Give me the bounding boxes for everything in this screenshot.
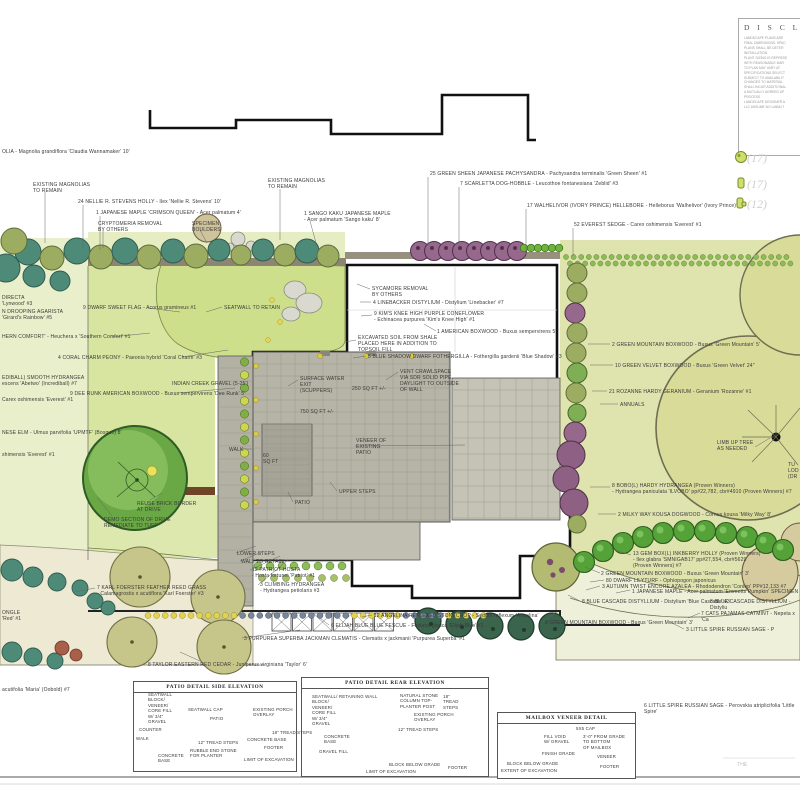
legend-row-1: (17) — [733, 149, 767, 167]
plan-label: LIMIT OF EXCAVATION — [366, 769, 416, 774]
plan-label: 9 DEE RUNK AMERICAN BOXWOOD - Buxus semp… — [70, 391, 245, 397]
plan-label: NATURAL STONE COLUMN TOP- PLANTER POST — [400, 693, 438, 709]
plan-label: LIMB UP TREE AS NEEDED — [717, 440, 753, 452]
plan-label: 9 DWARF SWEET FLAG - Acorus gramineus #1 — [83, 305, 196, 311]
plan-label: N DROOPING AGARISTA 'Girard's Rainbow' #… — [2, 309, 63, 321]
plan-label: EXISTING PORCH OVERLAY — [414, 712, 454, 723]
plan-label: FOOTER — [448, 765, 467, 770]
legend-count: (17) — [747, 151, 767, 166]
patio-rear-elevation-title: PATIO DETAIL REAR ELEVATION — [302, 678, 488, 689]
plan-label: 8 BLUE CASCADE DISTYLLIUM - Distyliu — [710, 599, 800, 611]
plan-label: 5 BLUE SHADOW DWARF FOTHERGILLA - Fother… — [368, 354, 562, 360]
plan-label: 8 BLUE CASCADE DISTYLLIUM - Distylium 'B… — [582, 599, 730, 605]
plan-label: TU LOD (DR — [788, 462, 799, 480]
plan-label: DIRECTA 'Lynwood' #3 — [2, 295, 33, 307]
plan-label: EDIBALL) SMOOTH HYDRANGEA escens 'Abetwo… — [2, 375, 84, 387]
plan-label: EXISTING MAGNOLIAS TO REMAIN — [33, 182, 90, 194]
plan-label: 1 AMERICAN BOXWOOD - Buxus sempervirens … — [437, 329, 557, 335]
plan-label: FOOTER — [600, 764, 619, 769]
plan-label: 1 JAPANESE MAPLE 'CRIMSON QUEEN' - Acer … — [96, 210, 241, 216]
plan-label: LOWER STEPS — [237, 551, 275, 557]
plan-label: 52 EVEREST SEDGE - Carex oshimensis 'Eve… — [574, 222, 702, 228]
plan-label: NESE ELM - Ulmus parvifolia 'UPMTF' (Bos… — [2, 430, 122, 436]
plan-label: 12" TREAD STEPS — [398, 727, 438, 732]
plan-label: SEATWALL BLOCK/ VENEER/ CORE FILL W/ 3/4… — [148, 692, 172, 724]
property-boundary — [150, 95, 536, 140]
plan-label: 17 WALHELIVOR (IVORY PRINCE) HELLEBORE -… — [527, 203, 737, 209]
plan-label: PATIO — [210, 716, 223, 721]
plan-label: CONCRETE BASE — [324, 734, 350, 745]
plan-label: WALL TO RETAIN — [241, 559, 284, 565]
plan-label: THE — [737, 762, 747, 768]
plan-label: 6 LITTLE SPIRE RUSSIAN SAGE - Perovskia … — [644, 703, 800, 715]
plan-label: COUNTER — [139, 727, 162, 732]
plan-label: 5X5 CAP — [576, 726, 595, 731]
plan-label: 2 GREEN MOUNTAIN BOXWOOD - Buxus 'Green … — [612, 342, 760, 348]
plan-label: 1 JAPANESE MAPLE - Acer palmatum 'Emmett… — [632, 589, 798, 595]
plan-label: 3'-0" FROM GRADE TO BOTTOM OF MAILBOX — [583, 734, 625, 750]
plan-label: DEMO SECTION OF DRIVE REMEDIATE TO TURF — [104, 517, 171, 529]
chinese-elm-tree — [83, 426, 187, 530]
plan-label: 6 ELIJAH BLUE BLUE FESCUE - Festuca glau… — [331, 623, 484, 629]
shrub-round-icon — [733, 149, 749, 165]
plan-label: EXISTING MAGNOLIAS TO REMAIN — [268, 178, 325, 190]
plan-label: SEATWALL/ RETAINING WALL BLOCK/ VENEER/ … — [312, 694, 378, 726]
plan-label: HERN COMFORT' - Heuchera x 'Southern Com… — [2, 334, 131, 340]
plan-label: VENT CRAWLSPACE VIA SDR SOLID PIPE DAYLI… — [400, 369, 459, 393]
plan-label: WALK — [136, 736, 149, 741]
plan-label: BLOCK BELOW GRADE — [389, 762, 440, 767]
landscape-plan-sheet: D I S C L A I M E R LANDSCAPE PLANS AREF… — [0, 0, 800, 800]
plan-label: 250 SQ FT +/- — [352, 386, 386, 392]
plan-label: EXCAVATED SOIL FROM SHALE PLACED HERE IN… — [358, 335, 437, 353]
plan-label: LIMIT OF EXCAVATION — [244, 757, 294, 762]
plan-label: CONCRETE BASE — [247, 737, 287, 742]
plan-label: 3 LITTLE SPIRE RUSSIAN SAGE - P — [686, 627, 774, 633]
plan-label: 7 CATS PAJAMAS CATMINT - Nepeta x 'Ca — [701, 611, 800, 623]
plan-label: 60 SQ FT — [263, 453, 278, 465]
plan-label: REUSE BRICK BORDER AT DRIVE — [137, 501, 196, 513]
plan-label: acutifolia 'Maria' (Oobold) #7 — [2, 687, 70, 693]
plan-label: VENEER — [597, 754, 616, 759]
plan-label: 12" TREAD STEPS — [198, 740, 238, 745]
plan-label: 12 PATRIOT HOSTA - Hosta fortunei 'Patri… — [252, 567, 315, 579]
plan-label: 24 NELLIE R. STEVENS HOLLY - Ilex 'Nelli… — [78, 199, 221, 205]
plan-label: OLIA - Magnolia grandiflora 'Claudia Wan… — [2, 149, 130, 155]
mailbox-veneer-detail-title: MAILBOX VENEER DETAIL — [498, 713, 635, 724]
plan-label: 8 TAYLOR EASTERN RED CEDAR - Juniperus v… — [148, 662, 307, 668]
plan-label: 8 BOBO(L) HARDY HYDRANGEA (Proven Winner… — [612, 483, 792, 495]
plan-label: SYCAMORE REMOVAL BY OTHERS — [372, 286, 428, 298]
plan-label: 21 ROZANNE HARDY GERANIUM - Geranium 'Ro… — [609, 389, 752, 395]
plan-label: shimensis 'Everest' #1 — [2, 452, 55, 458]
plan-label: EXTENT OF EXCAVATION — [501, 768, 557, 773]
plan-label: SURFACE WATER EXIT (SCUPPERS) — [300, 376, 344, 394]
plan-label: PATIO — [295, 500, 310, 506]
plan-label: 1 SANGO KAKU JAPANESE MAPLE - Acer palma… — [304, 211, 391, 223]
plan-label: 9 KIM'S KNEE HIGH PURPLE CONEFLOWER - Ec… — [374, 311, 484, 323]
plan-label: ONGLE 'Red' #1 — [2, 610, 21, 622]
plan-label: 3 CLIMBING HYDRANGEA - Hydrangea petiola… — [260, 582, 324, 594]
plan-label: UPPER STEPS — [339, 489, 376, 495]
legend-count: (12) — [747, 197, 767, 212]
disclaimer-line: LLC ASSUME NO LIABILIT — [744, 105, 800, 110]
plan-label: FINISH GRADE — [542, 751, 575, 756]
plan-label: 3 PURPUREA SUPERBA JACKMAN CLEMATIS - Cl… — [244, 636, 465, 642]
plan-label: INDIAN CREEK GRAVEL (5-25') — [172, 381, 248, 387]
shrub-notch-icon — [733, 195, 749, 211]
plan-label: VENEER OF EXISTING PATIO — [356, 438, 386, 456]
plan-label: 18" TREAD STEPS — [272, 730, 312, 735]
plan-label: 2 MILKY WAY KOUSA DOGWOOD - Cornus kousa… — [618, 512, 771, 518]
plan-label: BLOCK BELOW GRADE — [507, 761, 558, 766]
plan-label: FOOTER — [264, 745, 283, 750]
disclaimer-title: D I S C L A I M E R — [744, 23, 800, 32]
plan-label: 13 GEM BOX(L) INKBERRY HOLLY (Proven Win… — [633, 551, 761, 569]
disclaimer-block: D I S C L A I M E R LANDSCAPE PLANS AREF… — [738, 18, 800, 156]
plan-label: 7 KARL FOERSTER FEATHER REED GRASS - Cal… — [97, 585, 206, 597]
plan-label: 4 LINEBACKER DISTYLIUM - Distylium 'Line… — [373, 300, 504, 306]
plan-label: ANNUALS — [620, 402, 645, 408]
plan-label: 7 SCARLETTA DOG-HOBBLE - Leucothoe fonta… — [460, 181, 618, 187]
plan-label: FILL VOID W/ GRAVEL — [544, 734, 569, 745]
plan-label: 8 GREEN MOUNTAIN BOXWOOD - Buxus 'Green … — [545, 620, 693, 626]
legend-row-2: (17) — [733, 175, 767, 193]
disclaimer-text: LANDSCAPE PLANS AREFINAL DIMENSIONS, SPA… — [744, 36, 800, 110]
plan-label: SPECIMEN BOULDERS — [192, 221, 221, 233]
legend-row-3: (12) — [733, 195, 767, 213]
shrub-square-icon — [733, 175, 749, 191]
plan-label: Carex oshimensis 'Everest' #1 — [2, 397, 73, 403]
plan-label: 18" TREAD STEPS — [443, 694, 459, 710]
plan-label: 25 GREEN SHEEN JAPANESE PACHYSANDRA - Pa… — [430, 171, 647, 177]
plan-label: GRAVEL FILL — [319, 749, 348, 754]
plan-label: RUBBLE END STONE FOR PLANTER — [190, 748, 237, 759]
plan-label: SEATWALL TO RETAIN — [224, 305, 280, 311]
plan-label: WALK — [229, 447, 244, 453]
plan-label: EXISTING PORCH OVERLAY — [253, 707, 293, 718]
plan-label: 4 CORAL CHARM PEONY - Paeonia hybrid 'Co… — [58, 355, 202, 361]
plan-label: 2 GREEN MOUNTAIN BOXWOOD - Buxus 'Green … — [601, 571, 749, 577]
plan-label: 750 SQ FT +/- — [300, 409, 334, 415]
plan-label: SEATWALL CAP — [188, 707, 223, 712]
legend-count: (17) — [747, 177, 767, 192]
plan-label: 12 ANGELINA REFLEXED STONECROP - Sedum r… — [374, 613, 539, 619]
plan-label: 10 GREEN VELVET BOXWOOD - Buxus 'Green V… — [615, 363, 755, 369]
plan-label: CRYPTOMERIA REMOVAL BY OTHERS — [98, 221, 163, 233]
plan-label: CONCRETE BASE — [158, 753, 184, 764]
